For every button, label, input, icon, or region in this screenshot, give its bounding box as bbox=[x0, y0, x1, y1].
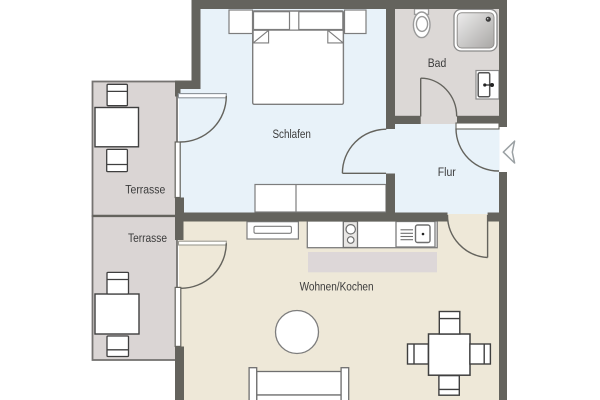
svg-text:Wohnen/Kochen: Wohnen/Kochen bbox=[300, 280, 374, 294]
svg-text:Terrasse: Terrasse bbox=[128, 231, 167, 245]
svg-text:Flur: Flur bbox=[438, 165, 456, 179]
svg-text:Schlafen: Schlafen bbox=[272, 127, 311, 141]
svg-text:Bad: Bad bbox=[428, 56, 447, 70]
svg-text:Terrasse: Terrasse bbox=[125, 183, 165, 197]
